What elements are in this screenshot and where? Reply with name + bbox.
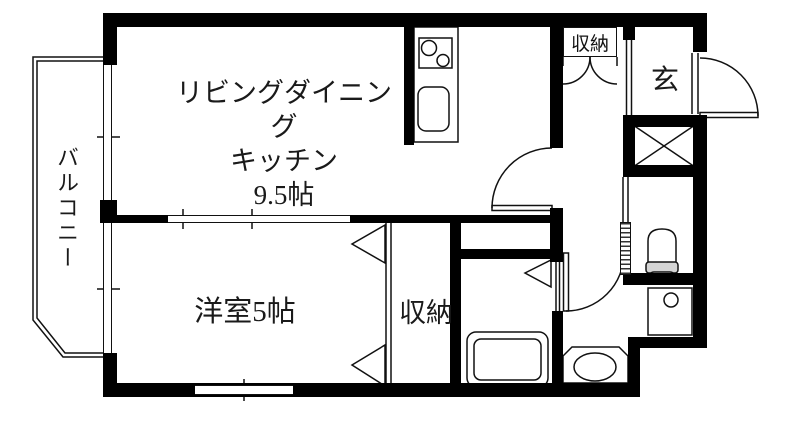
kitchen-sink bbox=[418, 87, 449, 131]
western-room-label: 洋室5帖 bbox=[175, 288, 315, 330]
wall-shaft-left bbox=[623, 115, 635, 177]
toilet-folding-door bbox=[620, 222, 631, 275]
front-door-leaf bbox=[700, 113, 758, 118]
ldk-label-line2: キッチン bbox=[164, 144, 404, 178]
partition-sliding-door bbox=[168, 215, 350, 223]
toilet-tank bbox=[648, 229, 676, 266]
entrance-label: 玄 bbox=[645, 58, 685, 98]
wall-left-bottom bbox=[103, 353, 117, 397]
bathtub-outer bbox=[467, 332, 548, 387]
ldk-label-size: 9.5帖 bbox=[164, 178, 404, 212]
window-left-west bbox=[103, 223, 112, 353]
wall-top bbox=[103, 13, 707, 27]
wall-bath-east bbox=[552, 311, 563, 397]
wall-shaft-bottom bbox=[623, 165, 707, 177]
closet-hall-label: 収納 bbox=[571, 29, 609, 56]
wall-ldk-south-a bbox=[117, 215, 168, 223]
wall-right-main bbox=[693, 116, 707, 348]
wall-left-top bbox=[103, 13, 117, 65]
washroom-door-arc bbox=[566, 253, 624, 311]
bathroom-folding-door bbox=[525, 260, 551, 287]
wall-kitchen-stub bbox=[404, 27, 414, 145]
wall-left-mid bbox=[100, 200, 117, 223]
closet-west-label: 収納 bbox=[394, 291, 458, 330]
wall-hall-west-upper bbox=[550, 27, 563, 148]
wall-step-horizontal bbox=[640, 337, 707, 348]
stove-burner-2 bbox=[437, 55, 449, 67]
wall-entrance-stub bbox=[623, 13, 635, 40]
wall-washroom-north bbox=[451, 249, 563, 259]
front-door-arc bbox=[700, 58, 758, 116]
washroom-door-leaf bbox=[564, 253, 569, 311]
wash-basin bbox=[648, 288, 692, 335]
closet-hall-door-arc-right bbox=[590, 57, 617, 84]
stove-burner-1 bbox=[422, 41, 437, 56]
wall-toilet-south bbox=[623, 273, 707, 285]
window-bottom bbox=[195, 385, 293, 395]
closet-folding-door-top bbox=[352, 225, 385, 263]
closet-hall-door-arc-left bbox=[563, 57, 590, 84]
balcony-label: バルコニー bbox=[50, 146, 82, 296]
closet-hall-box: 収納 bbox=[563, 27, 617, 57]
ldk-door-arc bbox=[492, 148, 552, 208]
floor-plan: 収納 リビングダイニング キッチン 9.5帖 洋室5帖 収納 玄 バルコニー bbox=[0, 0, 800, 421]
ldk-door-leaf bbox=[492, 206, 552, 211]
closet-folding-door-bottom bbox=[352, 345, 385, 386]
wall-shaft-top bbox=[623, 115, 707, 127]
window-left-ldk bbox=[103, 65, 112, 200]
ldk-label: リビングダイニング キッチン 9.5帖 bbox=[164, 76, 404, 212]
ldk-label-line1: リビングダイニング bbox=[164, 76, 404, 144]
wall-right-upper bbox=[693, 13, 707, 52]
